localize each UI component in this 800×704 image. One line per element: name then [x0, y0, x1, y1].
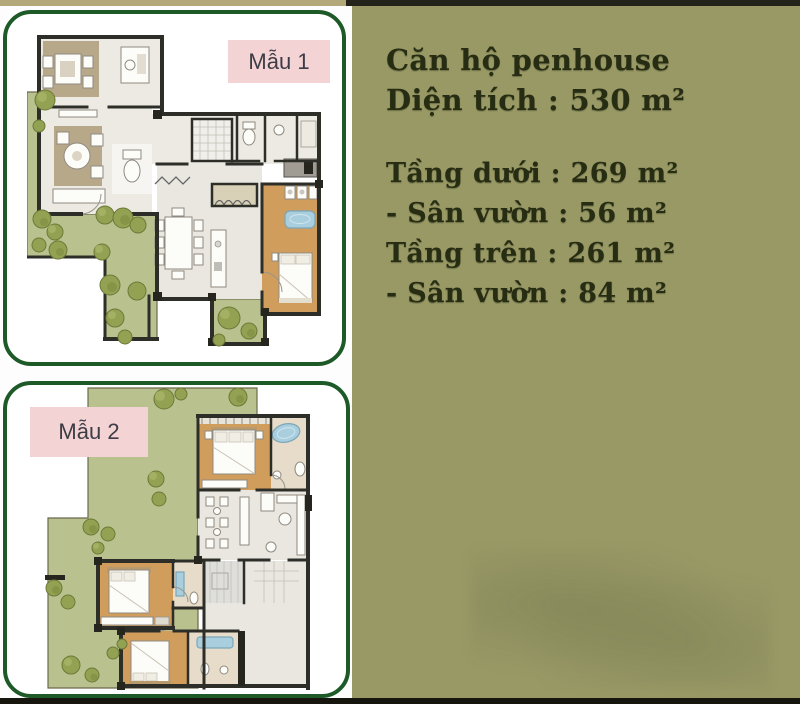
plan-label-1: Mẫu 1 [228, 40, 330, 83]
total-area-line: Diện tích : 530 m² [386, 80, 685, 120]
plan-label-2: Mẫu 2 [30, 407, 148, 457]
floorplan-card-1: Mẫu 1 [3, 10, 346, 366]
spec-line-lower-floor: Tầng dưới : 269 m² [386, 154, 679, 194]
floorplan-card-2: Mẫu 2 [3, 381, 350, 698]
apartment-title: Căn hộ penhouse [386, 40, 685, 80]
spec-line-upper-garden: - Sân vườn : 84 m² [386, 274, 679, 314]
spec-line-lower-garden: - Sân vườn : 56 m² [386, 194, 679, 234]
spec-line-upper-floor: Tầng trên : 261 m² [386, 234, 679, 274]
watermark-smudge [470, 548, 770, 688]
bottom-bar [0, 698, 800, 704]
info-panel: Căn hộ penhouse Diện tích : 530 m² Tầng … [352, 6, 800, 698]
page: Mẫu 1 [0, 0, 800, 704]
